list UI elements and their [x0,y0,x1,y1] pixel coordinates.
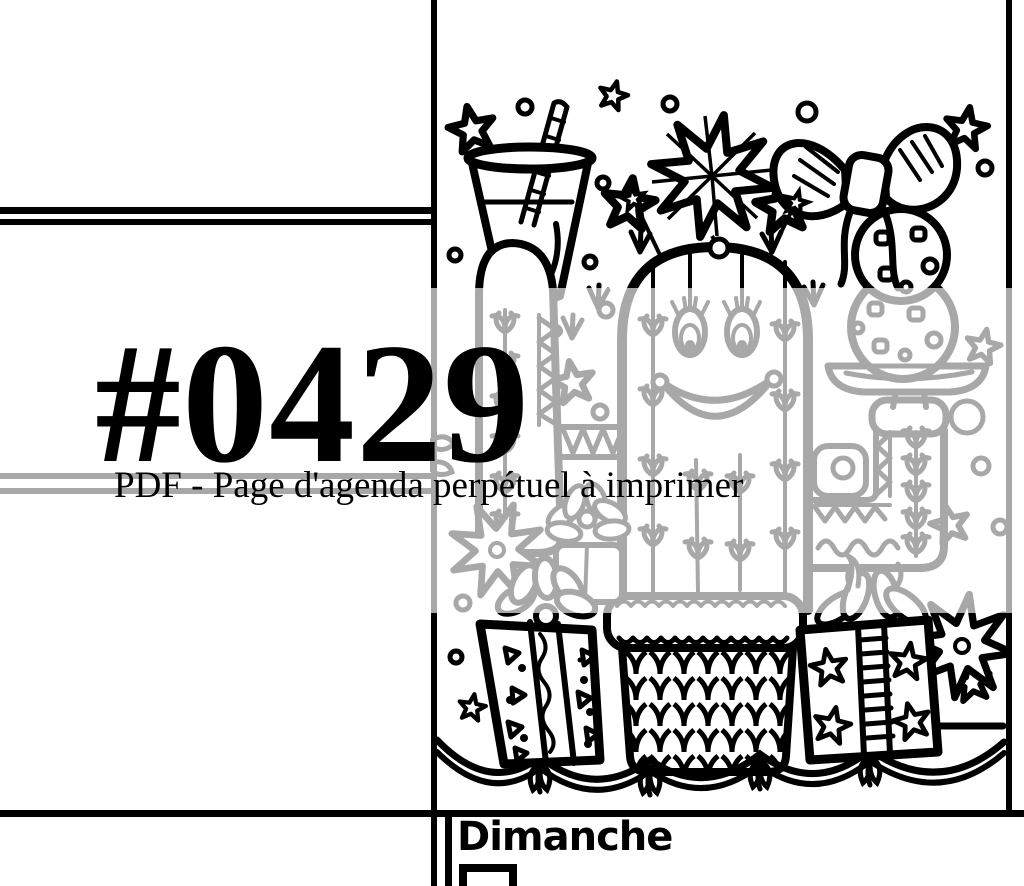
day-box-left-border [445,810,452,886]
day-label: Dimanche [457,814,672,860]
day-checkbox[interactable] [459,864,517,886]
watermark-subtitle: PDF - Page d'agenda perpétuel à imprimer [114,466,743,507]
knitted-basket [607,596,803,772]
agenda-page: #0429 PDF - Page d'agenda perpétuel à im… [0,0,1024,886]
divider-line-top-a [0,207,437,214]
divider-line-top-b [0,219,437,225]
